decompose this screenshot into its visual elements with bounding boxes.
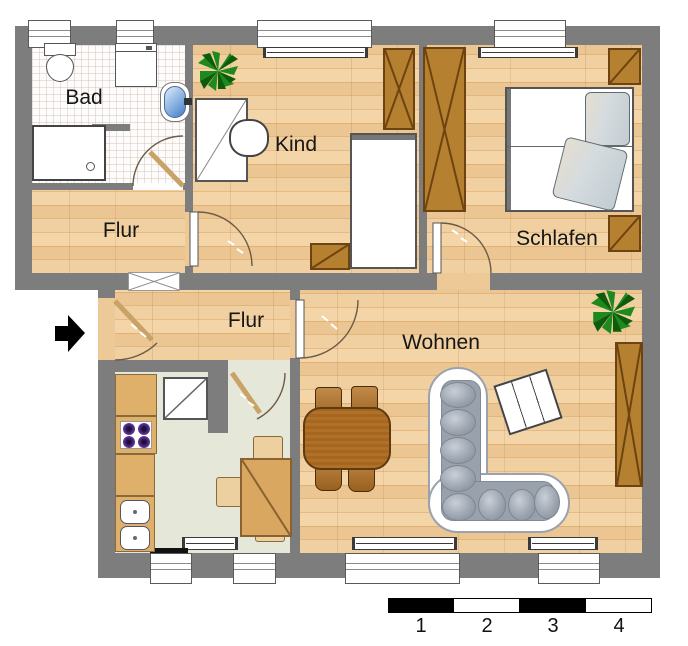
- schlafen-window: [494, 20, 566, 48]
- kind-label: Kind: [275, 133, 317, 157]
- flur-upper-label: Flur: [103, 219, 139, 243]
- dining-table-icon: [303, 407, 391, 470]
- kueche-radiator: [182, 537, 238, 550]
- scale-segment: [388, 598, 454, 613]
- kind-side-table-icon: [310, 243, 350, 270]
- kueche-window-2: [233, 553, 276, 584]
- kueche-cabinet-icon: [163, 377, 208, 420]
- scale-bar: [388, 598, 652, 613]
- kind-wardrobe-icon: [383, 48, 415, 130]
- plant-icon: [589, 290, 637, 334]
- scale-segment: [454, 598, 520, 613]
- bad-door-opening: [133, 183, 183, 190]
- burner-icon: [138, 423, 150, 435]
- burner-icon: [123, 423, 135, 435]
- stove-icon: [115, 416, 157, 454]
- plant-icon: [195, 51, 241, 91]
- scale-labels: 1 2 3 4: [388, 615, 652, 638]
- schlafen-cabinet-icon: [608, 215, 641, 252]
- wohnen-label: Wohnen: [402, 331, 480, 355]
- counter-icon: [115, 374, 157, 416]
- sofa-pillow: [440, 465, 476, 492]
- wall-left-upper: [15, 26, 32, 290]
- kueche-sill: [150, 548, 188, 553]
- scale-segment: [520, 598, 586, 613]
- washer-knob: [146, 46, 152, 50]
- scale-label: 1: [388, 615, 454, 638]
- flur-lower-label: Flur: [228, 309, 264, 333]
- wohnen-radiator-2: [528, 537, 598, 550]
- entrance-arrow-icon: [55, 315, 85, 352]
- shower-drain: [86, 162, 95, 171]
- schlafen-cabinet-icon: [608, 48, 641, 85]
- sofa-pillow: [478, 489, 506, 521]
- scale-label: 3: [520, 615, 586, 638]
- bed-headboard: [507, 89, 511, 210]
- sofa-pillow: [508, 489, 536, 521]
- tap-icon: [184, 98, 192, 105]
- flur-passage: [128, 272, 180, 291]
- scale-label: 2: [454, 615, 520, 638]
- wohnen-shelf-icon: [615, 342, 643, 487]
- sofa-pillow: [440, 382, 476, 408]
- shower-icon: [32, 125, 106, 181]
- wall-right: [642, 26, 660, 578]
- sofa-pillow: [440, 437, 476, 464]
- wall-kueche-top: [115, 360, 228, 372]
- burner-icon: [138, 436, 150, 448]
- wohnen-door-opening: [290, 300, 300, 358]
- schlafen-radiator: [478, 47, 578, 58]
- passage-x-icon: [129, 273, 179, 290]
- scale-segment: [586, 598, 652, 613]
- desk-chair-icon: [229, 119, 269, 157]
- schlafen-wardrobe-icon: [423, 47, 466, 212]
- stove-top: [120, 421, 152, 449]
- sink-bowl: [164, 86, 186, 118]
- washer-panel: [116, 51, 156, 52]
- scale-label: 4: [586, 615, 652, 638]
- schlafen-door-opening: [437, 273, 490, 290]
- wohnen-radiator-1: [352, 537, 457, 550]
- kind-radiator: [263, 47, 368, 58]
- duvet-icon: [585, 92, 630, 146]
- wall-middle: [15, 273, 660, 290]
- kitchen-sink-icon: [115, 496, 155, 552]
- burner-icon: [123, 436, 135, 448]
- entry-door-opening: [98, 298, 115, 360]
- kind-window: [257, 20, 372, 48]
- sink-basin: [120, 526, 150, 550]
- counter-icon: [115, 454, 155, 496]
- kueche-window-1: [150, 553, 192, 584]
- bed-headboard: [352, 135, 415, 140]
- sofa-pillow: [534, 485, 560, 519]
- kueche-table-icon: [240, 458, 292, 537]
- bad-label: Bad: [65, 86, 102, 110]
- kind-door-opening: [185, 212, 193, 266]
- sofa-pillow: [442, 493, 476, 521]
- wohnen-window-1: [345, 553, 460, 584]
- washing-machine-icon: [115, 43, 157, 87]
- sink-basin: [120, 500, 150, 524]
- kind-bed-icon: [350, 133, 417, 269]
- floorplan: Bad Flur Kind Schlafen Flur Wohnen 1 2 3…: [0, 0, 688, 646]
- schlafen-label: Schlafen: [516, 227, 598, 251]
- wall-kueche-stub: [208, 372, 228, 433]
- sofa-pillow: [440, 409, 476, 436]
- wohnen-window-2: [538, 553, 600, 584]
